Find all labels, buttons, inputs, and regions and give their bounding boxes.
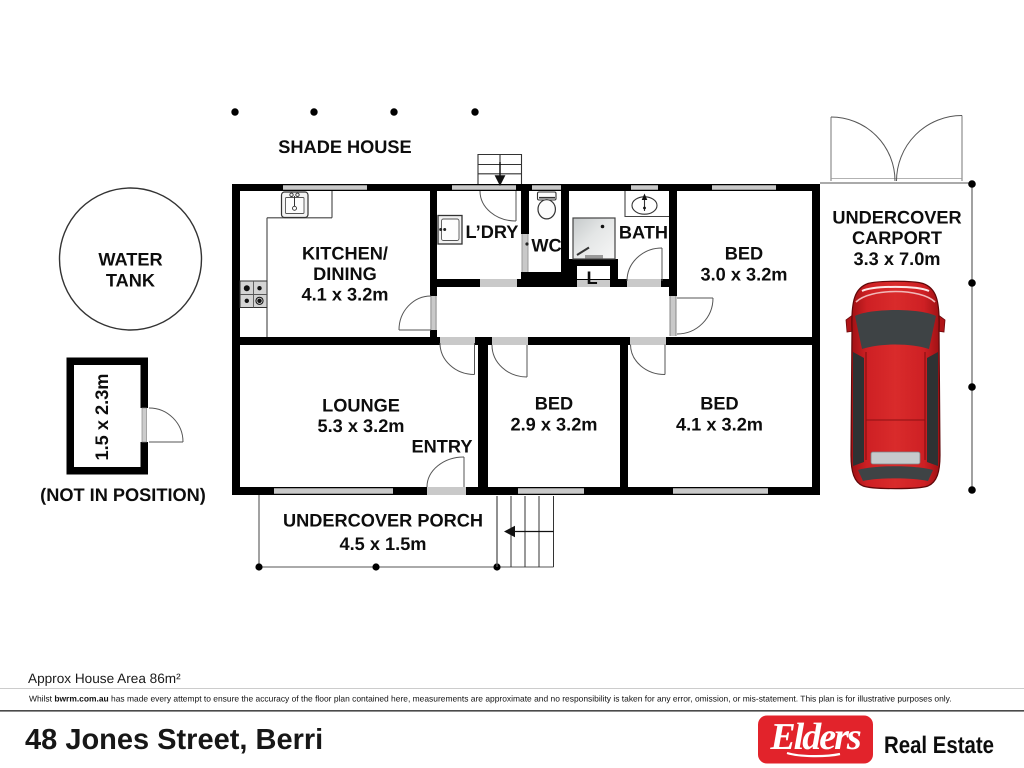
svg-text:L’DRY: L’DRY: [466, 222, 519, 242]
svg-text:UNDERCOVER PORCH: UNDERCOVER PORCH: [283, 511, 483, 531]
svg-text:4.1 x 3.2m: 4.1 x 3.2m: [676, 415, 763, 435]
svg-text:KITCHEN/: KITCHEN/: [302, 244, 388, 264]
svg-text:5.3 x 3.2m: 5.3 x 3.2m: [318, 416, 405, 436]
svg-text:Whilst bwrm.com.au has made ev: Whilst bwrm.com.au has made every attemp…: [29, 694, 952, 704]
svg-text:BED: BED: [725, 244, 763, 264]
svg-text:TANK: TANK: [106, 271, 155, 291]
svg-text:1.5 x 2.3m: 1.5 x 2.3m: [92, 374, 112, 461]
svg-text:WC: WC: [531, 236, 561, 256]
svg-text:Approx House Area 86m²: Approx House Area 86m²: [28, 671, 181, 686]
svg-text:BATH: BATH: [619, 223, 668, 243]
svg-text:2.9 x 3.2m: 2.9 x 3.2m: [511, 415, 598, 435]
svg-text:3.0 x 3.2m: 3.0 x 3.2m: [701, 265, 788, 285]
svg-text:DINING: DINING: [313, 264, 377, 284]
svg-text:L: L: [586, 268, 597, 288]
svg-text:3.3 x 7.0m: 3.3 x 7.0m: [854, 249, 941, 269]
svg-text:4.1 x 3.2m: 4.1 x 3.2m: [302, 285, 389, 305]
svg-text:BED: BED: [700, 394, 738, 414]
svg-text:BED: BED: [535, 394, 573, 414]
svg-text:Elders: Elders: [769, 716, 861, 758]
svg-text:SHADE HOUSE: SHADE HOUSE: [278, 137, 411, 157]
svg-text:4.5 x 1.5m: 4.5 x 1.5m: [340, 534, 427, 554]
svg-text:CARPORT: CARPORT: [852, 228, 942, 248]
svg-text:LOUNGE: LOUNGE: [322, 396, 400, 416]
svg-text:Real Estate: Real Estate: [884, 732, 994, 759]
svg-text:(NOT IN POSITION): (NOT IN POSITION): [40, 485, 206, 505]
svg-text:ENTRY: ENTRY: [412, 437, 473, 457]
svg-text:48 Jones Street, Berri: 48 Jones Street, Berri: [25, 724, 323, 756]
svg-text:WATER: WATER: [98, 250, 162, 270]
svg-text:UNDERCOVER: UNDERCOVER: [832, 208, 961, 228]
